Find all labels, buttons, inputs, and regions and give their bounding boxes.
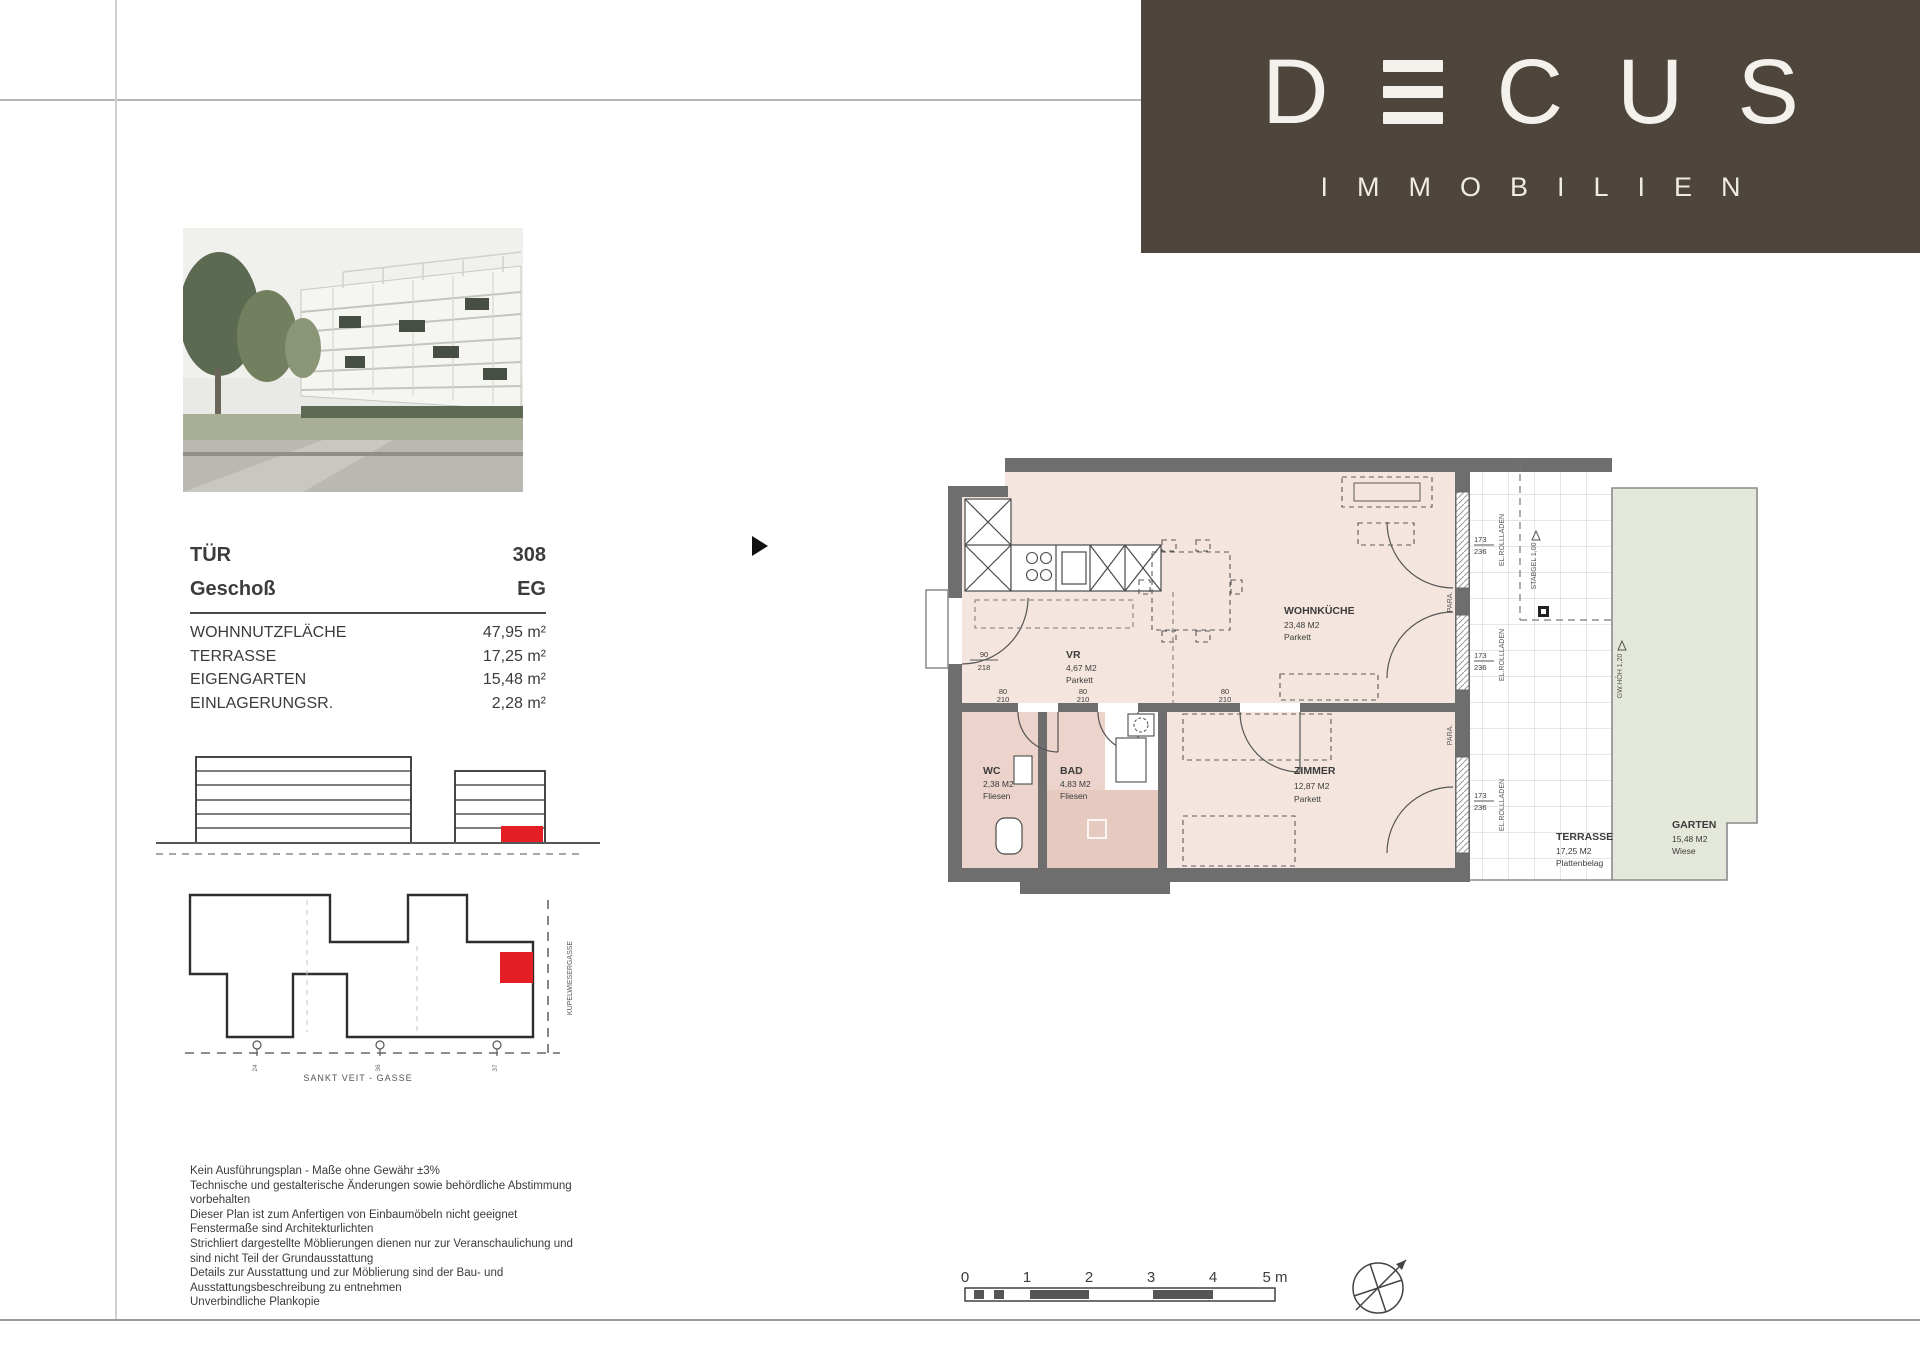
svg-text:ZIMMER: ZIMMER: [1294, 765, 1336, 777]
floor-value: EG: [517, 572, 546, 606]
area-label: EIGENGARTEN: [190, 668, 306, 692]
svg-text:210: 210: [997, 695, 1010, 704]
disclaimer-line: Unverbindliche Plankopie: [190, 1295, 660, 1310]
brand-letter-d: D: [1262, 40, 1328, 145]
area-row: WOHNNUTZFLÄCHE 47,95 m²: [190, 621, 546, 645]
unit-highlight-siteplan: [500, 952, 533, 983]
door-label: TÜR: [190, 538, 231, 572]
svg-text:218: 218: [978, 663, 991, 672]
area-value: 47,95 m²: [483, 621, 546, 645]
svg-text:EL.ROLLLADEN: EL.ROLLLADEN: [1499, 779, 1506, 831]
brand-tagline: IMMOBILIEN: [1141, 172, 1920, 203]
area-row: EIGENGARTEN 15,48 m²: [190, 668, 546, 692]
floor-row: Geschoß EG: [190, 572, 546, 606]
svg-text:5 m: 5 m: [1262, 1269, 1287, 1286]
svg-text:Parkett: Parkett: [1066, 675, 1094, 685]
svg-text:236: 236: [1474, 803, 1487, 812]
street-label-side: KUPELWIESERGASSE: [567, 941, 574, 1016]
svg-text:236: 236: [1474, 547, 1487, 556]
door-row: TÜR 308: [190, 538, 546, 572]
floor-label: Geschoß: [190, 572, 276, 606]
top-rule: [0, 99, 1141, 101]
disclaimer-line: Strichliert dargestellte Möblierungen di…: [190, 1237, 660, 1252]
site-plan: 24 36 37 SANKT VEIT - GASSE KUPELWIESERG…: [150, 880, 600, 1095]
svg-text:236: 236: [1474, 663, 1487, 672]
unit-info-panel: TÜR 308 Geschoß EG WOHNNUTZFLÄCHE 47,95 …: [190, 538, 546, 715]
svg-text:Parkett: Parkett: [1284, 632, 1312, 642]
svg-text:2: 2: [1085, 1269, 1093, 1286]
area-row: TERRASSE 17,25 m²: [190, 645, 546, 669]
disclaimer-line: Details zur Ausstattung und zur Möblieru…: [190, 1266, 660, 1281]
door-value: 308: [513, 538, 546, 572]
svg-text:210: 210: [1219, 695, 1232, 704]
marker-value: 37: [492, 1064, 499, 1072]
marker-value: 24: [252, 1064, 259, 1072]
info-divider: [190, 612, 546, 614]
disclaimer-line: Ausstattungsbeschreibung zu entnehmen: [190, 1281, 660, 1296]
svg-text:PARA.: PARA.: [1447, 592, 1454, 613]
disclaimer-line: sind nicht Teil der Grundausstattung: [190, 1252, 660, 1267]
svg-text:PARA.: PARA.: [1447, 725, 1454, 746]
disclaimer-line: Fenstermaße sind Architekturlichten: [190, 1222, 660, 1237]
disclaimer-line: Kein Ausführungsplan - Maße ohne Gewähr …: [190, 1164, 660, 1179]
disclaimer-line: Technische und gestalterische Änderungen…: [190, 1179, 660, 1194]
floor-plan: WOHNKÜCHE 23,48 M2 Parkett VR 4,67 M2 Pa…: [740, 440, 1800, 910]
svg-text:17,25 M2: 17,25 M2: [1556, 846, 1592, 856]
area-value: 2,28 m²: [492, 692, 546, 716]
svg-text:STABGEL 1,00: STABGEL 1,00: [1531, 542, 1538, 589]
disclaimer-line: Dieser Plan ist zum Anfertigen von Einba…: [190, 1208, 660, 1223]
area-value: 15,48 m²: [483, 668, 546, 692]
svg-text:TERRASSE: TERRASSE: [1556, 831, 1613, 843]
svg-text:GW.HÖH 1,20: GW.HÖH 1,20: [1616, 654, 1624, 699]
windows: [1456, 492, 1469, 853]
svg-text:173: 173: [1474, 651, 1487, 660]
svg-text:EL.ROLLLADEN: EL.ROLLLADEN: [1499, 514, 1506, 566]
disclaimer-line: vorbehalten: [190, 1193, 660, 1208]
svg-text:EL.ROLLLADEN: EL.ROLLLADEN: [1499, 629, 1506, 681]
svg-text:GARTEN: GARTEN: [1672, 819, 1716, 831]
svg-text:23,48 M2: 23,48 M2: [1284, 620, 1320, 630]
area-label: EINLAGERUNGSR.: [190, 692, 333, 716]
area-label: WOHNNUTZFLÄCHE: [190, 621, 346, 645]
svg-text:Parkett: Parkett: [1294, 794, 1322, 804]
building-section-diagram: [150, 735, 610, 865]
disclaimer-text: Kein Ausführungsplan - Maße ohne Gewähr …: [190, 1164, 660, 1310]
svg-text:3: 3: [1147, 1269, 1155, 1286]
entrance-niche: [926, 590, 948, 668]
scale-and-compass: 0 1 2 3 4 5 m: [940, 1250, 1460, 1320]
unit-highlight-section: [501, 826, 543, 842]
street-label-bottom: SANKT VEIT - GASSE: [303, 1073, 412, 1083]
svg-text:Plattenbelag: Plattenbelag: [1556, 858, 1604, 868]
svg-text:15,48 M2: 15,48 M2: [1672, 834, 1708, 844]
svg-text:VR: VR: [1066, 649, 1081, 661]
left-rule: [115, 0, 117, 1320]
svg-text:173: 173: [1474, 535, 1487, 544]
terrace-area: [1470, 462, 1612, 880]
building-rendering: [183, 228, 523, 492]
plan-sheet: D CUS IMMOBILIEN: [0, 0, 1920, 1358]
svg-text:12,87 M2: 12,87 M2: [1294, 781, 1330, 791]
svg-text:BAD: BAD: [1060, 765, 1083, 777]
brand-letter-e-bars-icon: [1383, 60, 1443, 124]
compass-icon: [1353, 1260, 1406, 1313]
brand-letters-cus: CUS: [1497, 40, 1853, 145]
svg-text:Wiese: Wiese: [1672, 846, 1696, 856]
building-footprint: [190, 895, 533, 1037]
marker-value: 36: [375, 1064, 382, 1072]
svg-text:90: 90: [980, 650, 988, 659]
svg-text:1: 1: [1023, 1269, 1031, 1286]
svg-text:0: 0: [961, 1269, 969, 1286]
scale-bar: 0 1 2 3 4 5 m: [961, 1269, 1288, 1301]
svg-text:4: 4: [1209, 1269, 1217, 1286]
entrance-arrow-icon: [752, 536, 768, 556]
svg-text:2,38 M2: 2,38 M2: [983, 779, 1014, 789]
svg-text:Fliesen: Fliesen: [1060, 791, 1088, 801]
bad-platform: [1047, 790, 1158, 868]
brand-logo: D CUS IMMOBILIEN: [1141, 0, 1920, 253]
brand-word: D CUS: [1141, 46, 1920, 138]
area-value: 17,25 m²: [483, 645, 546, 669]
svg-text:4,67 M2: 4,67 M2: [1066, 663, 1097, 673]
svg-text:WOHNKÜCHE: WOHNKÜCHE: [1284, 604, 1355, 617]
area-label: TERRASSE: [190, 645, 276, 669]
area-row: EINLAGERUNGSR. 2,28 m²: [190, 692, 546, 716]
svg-text:173: 173: [1474, 791, 1487, 800]
svg-text:Fliesen: Fliesen: [983, 791, 1011, 801]
svg-text:WC: WC: [983, 765, 1001, 777]
svg-text:210: 210: [1077, 695, 1090, 704]
svg-text:4,83 M2: 4,83 M2: [1060, 779, 1091, 789]
